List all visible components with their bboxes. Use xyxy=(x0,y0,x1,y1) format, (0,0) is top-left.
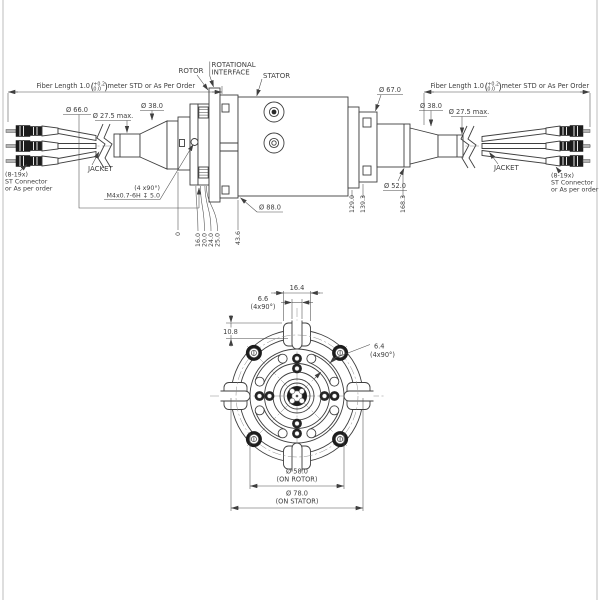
fiber-cables-right xyxy=(482,129,546,164)
screw-small xyxy=(292,364,302,374)
tab-slot-east xyxy=(344,391,374,401)
technical-drawing: Fiber Length 1.0 ( +0.2 0.0 ) meter STD … xyxy=(0,0,600,600)
note-line: ST Connector xyxy=(551,180,594,187)
st-pin xyxy=(6,160,16,163)
fiber-tol-bottom-left: 0.0 xyxy=(93,87,101,93)
tab-slot-west xyxy=(221,391,251,401)
cable-boot-cylinder-left xyxy=(114,134,140,157)
end-cap-52 xyxy=(377,124,410,167)
left-connector-assembly xyxy=(6,124,112,168)
st-connector-note-left: (8-19x) ST Connector or As per order xyxy=(5,165,53,193)
ordinate-0: 0 xyxy=(175,232,182,236)
center-hub xyxy=(284,383,310,409)
rotor-shaft-cylinder xyxy=(167,121,178,169)
fiber-length-suffix-left: meter STD or As Per Order xyxy=(108,82,196,90)
fiber-length-dim-right: Fiber Length 1.0 ( +0.2 0.0 ) meter STD … xyxy=(424,81,590,127)
screw-small xyxy=(320,391,330,401)
stator-body xyxy=(238,97,348,196)
rotor-label: ROTOR xyxy=(178,67,203,75)
dia-38-right-label: Ø 38.0 xyxy=(420,102,442,110)
ordinate-43-6: 43.6 xyxy=(235,231,242,245)
st-pin xyxy=(6,130,16,133)
ordinate-139-3: 139.3 xyxy=(360,195,367,213)
dia-27-right-label: Ø 27.5 max. xyxy=(449,108,490,116)
dim-6-4-note: (4x90°) xyxy=(370,351,395,359)
screw-small xyxy=(265,391,275,401)
ferrule-hole xyxy=(299,389,304,394)
dia-58-label: Ø 58.0 xyxy=(286,468,308,476)
dia-58-note: (ON ROTOR) xyxy=(277,476,318,484)
rotational-interface-plate xyxy=(209,88,220,202)
screw-small xyxy=(292,429,302,439)
thread-note-line2: M4x0.7-6H ↧ 5.0 xyxy=(107,193,161,200)
screw xyxy=(332,431,348,447)
ordinate-129: 129.0 xyxy=(349,195,356,213)
screw-small xyxy=(255,391,265,401)
dim-6-4: 6.4 xyxy=(374,343,385,351)
note-line: (8-19x) xyxy=(551,173,574,180)
fiber-tol-bottom-right: 0.0 xyxy=(487,87,495,93)
dia-52-label: Ø 52.0 xyxy=(384,182,406,190)
note-line: ST Connector xyxy=(5,179,48,186)
rotor-mount-flange xyxy=(198,104,209,185)
ferrule-hole xyxy=(290,389,295,394)
ferrule-hole xyxy=(299,398,304,403)
ordinate-168-3: 168.3 xyxy=(400,195,407,213)
front-view: 16.4 6.6 (4x90°) 10.8 6.4 (4x90°) xyxy=(210,284,395,511)
drawing-page: Fiber Length 1.0 ( +0.2 0.0 ) meter STD … xyxy=(0,0,600,600)
ferrule-hole xyxy=(290,398,295,403)
dia-38-left-label: Ø 38.0 xyxy=(141,102,163,110)
dia-66-label: Ø 66.0 xyxy=(66,106,88,114)
note-line: or As per order xyxy=(551,187,599,194)
st-connector-note-right: (8-19x) ST Connector or As per order xyxy=(551,167,599,194)
end-plate-1 xyxy=(348,107,359,188)
rotor-cone-left xyxy=(140,121,167,169)
jacket-label-right: JACKET xyxy=(493,164,520,172)
dia-88-label: Ø 88.0 xyxy=(259,204,281,212)
fiber-length-suffix-right: meter STD or As Per Order xyxy=(502,82,590,90)
screw xyxy=(246,431,262,447)
fiber-length-prefix-right: Fiber Length 1.0 xyxy=(430,82,484,90)
dim-6-6-note: (4x90°) xyxy=(251,303,276,311)
dim-16-4: 16.4 xyxy=(290,284,305,292)
stator-cone-right xyxy=(410,128,438,164)
dim-6-6: 6.6 xyxy=(258,295,269,303)
cable-boot-cylinder-right xyxy=(438,135,463,157)
note-line: or As per order xyxy=(5,186,53,193)
thread-note-line1: (4 x90°) xyxy=(134,184,160,192)
right-connector-assembly xyxy=(546,126,590,167)
screw xyxy=(246,345,262,361)
screw-small xyxy=(292,419,302,429)
rotational-interface-label-2: INTERFACE xyxy=(212,69,250,77)
stator-label: STATOR xyxy=(263,72,290,80)
jacket-label-left: JACKET xyxy=(87,165,114,173)
st-connector-bodies xyxy=(16,126,58,167)
screw-small xyxy=(330,391,340,401)
dia-78-label: Ø 78.0 xyxy=(286,490,308,498)
fiber-length-prefix-left: Fiber Length 1.0 xyxy=(36,82,90,90)
side-view: Fiber Length 1.0 ( +0.2 0.0 ) meter STD … xyxy=(5,61,599,247)
ordinate-25: 25.0 xyxy=(215,233,222,247)
dim-10-8: 10.8 xyxy=(223,328,238,336)
screw-small xyxy=(292,354,302,364)
rotor-assembly xyxy=(114,88,238,202)
dia-27-left-label: Ø 27.5 max. xyxy=(93,112,134,120)
fiber-cables-left xyxy=(58,129,96,164)
tab-slot-north xyxy=(292,321,302,350)
note-line: (8-19x) xyxy=(5,172,28,179)
st-pin xyxy=(6,145,16,148)
dia-78-note: (ON STATOR) xyxy=(276,498,319,506)
dia-67-label: Ø 67.0 xyxy=(379,86,401,94)
